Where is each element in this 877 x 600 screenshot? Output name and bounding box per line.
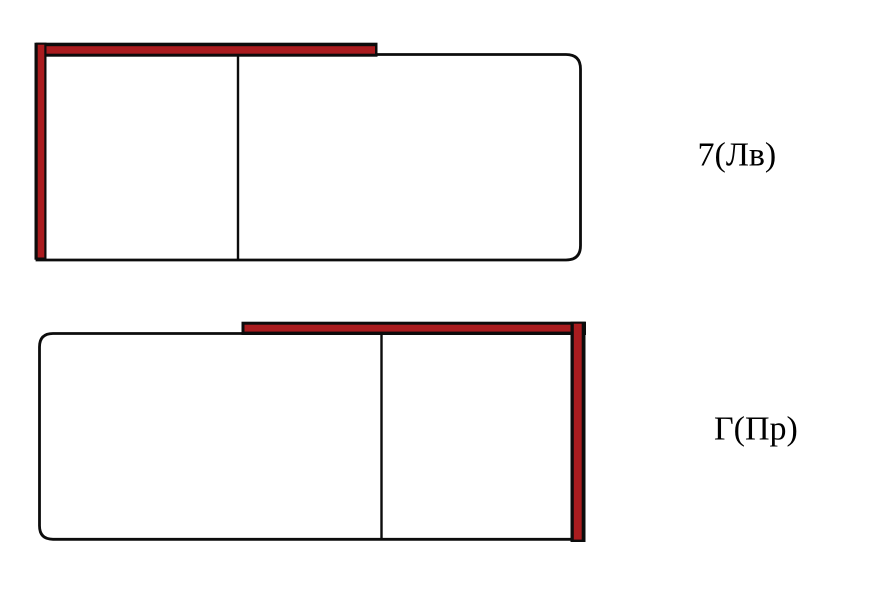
svg-text:Г(Пр): Г(Пр) [714,411,798,448]
svg-text:7(Лв): 7(Лв) [698,137,777,174]
